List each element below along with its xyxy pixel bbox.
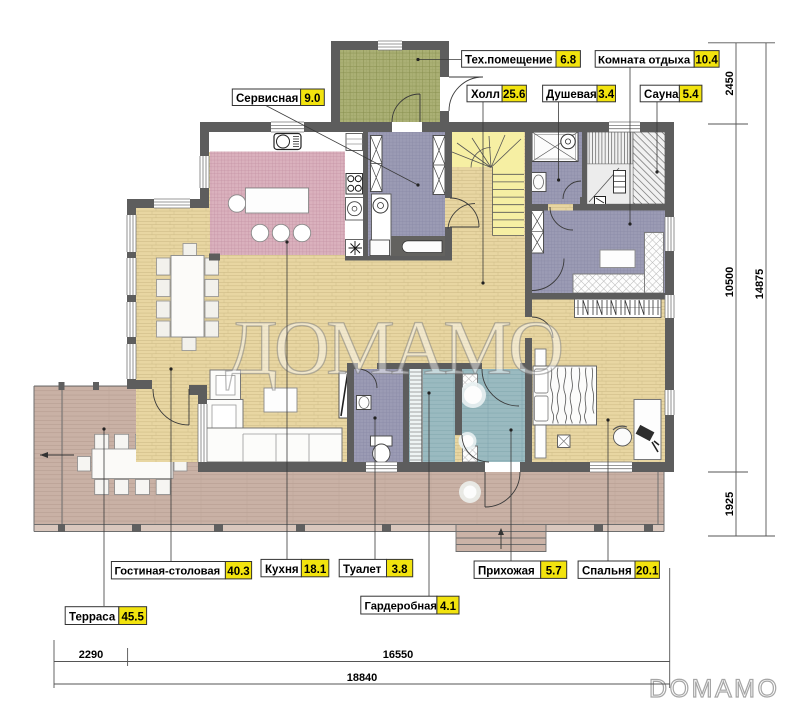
svg-text:2290: 2290 <box>79 649 103 661</box>
svg-text:6.8: 6.8 <box>560 55 577 67</box>
svg-text:9.0: 9.0 <box>304 93 320 105</box>
svg-text:5.4: 5.4 <box>683 89 700 101</box>
svg-text:Терраса: Терраса <box>69 611 116 623</box>
svg-text:18840: 18840 <box>347 672 378 684</box>
svg-text:45.5: 45.5 <box>122 611 145 623</box>
svg-text:5.7: 5.7 <box>546 565 562 577</box>
svg-text:1925: 1925 <box>724 492 736 516</box>
svg-text:Спальня: Спальня <box>582 565 632 577</box>
svg-text:40.3: 40.3 <box>227 566 249 578</box>
svg-text:4.1: 4.1 <box>440 601 457 613</box>
svg-text:10.4: 10.4 <box>695 55 718 67</box>
svg-text:Сервисная: Сервисная <box>236 93 298 105</box>
svg-text:3.8: 3.8 <box>392 564 409 576</box>
svg-text:2450: 2450 <box>724 71 736 95</box>
svg-text:18.1: 18.1 <box>304 564 327 576</box>
svg-text:ДОМАМО: ДОМАМО <box>225 305 566 391</box>
svg-text:16550: 16550 <box>383 649 414 661</box>
svg-text:Прихожая: Прихожая <box>478 565 535 577</box>
svg-text:25.6: 25.6 <box>503 89 525 101</box>
svg-text:Холл: Холл <box>471 89 500 101</box>
svg-text:3.4: 3.4 <box>598 89 615 101</box>
svg-text:Кухня: Кухня <box>265 564 299 576</box>
svg-text:Сауна: Сауна <box>644 89 679 101</box>
svg-text:Гардеробная: Гардеробная <box>365 601 437 613</box>
svg-text:Тех.помещение: Тех.помещение <box>465 55 553 67</box>
svg-text:10500: 10500 <box>724 267 736 298</box>
svg-text:DOMAMO: DOMAMO <box>649 675 783 703</box>
svg-text:20.1: 20.1 <box>636 565 659 577</box>
svg-text:Душевая: Душевая <box>546 89 597 101</box>
svg-text:Туалет: Туалет <box>343 564 382 576</box>
svg-text:Комната отдыха: Комната отдыха <box>598 55 691 67</box>
svg-text:Гостиная-столовая: Гостиная-столовая <box>115 566 221 578</box>
svg-text:14875: 14875 <box>754 269 766 300</box>
